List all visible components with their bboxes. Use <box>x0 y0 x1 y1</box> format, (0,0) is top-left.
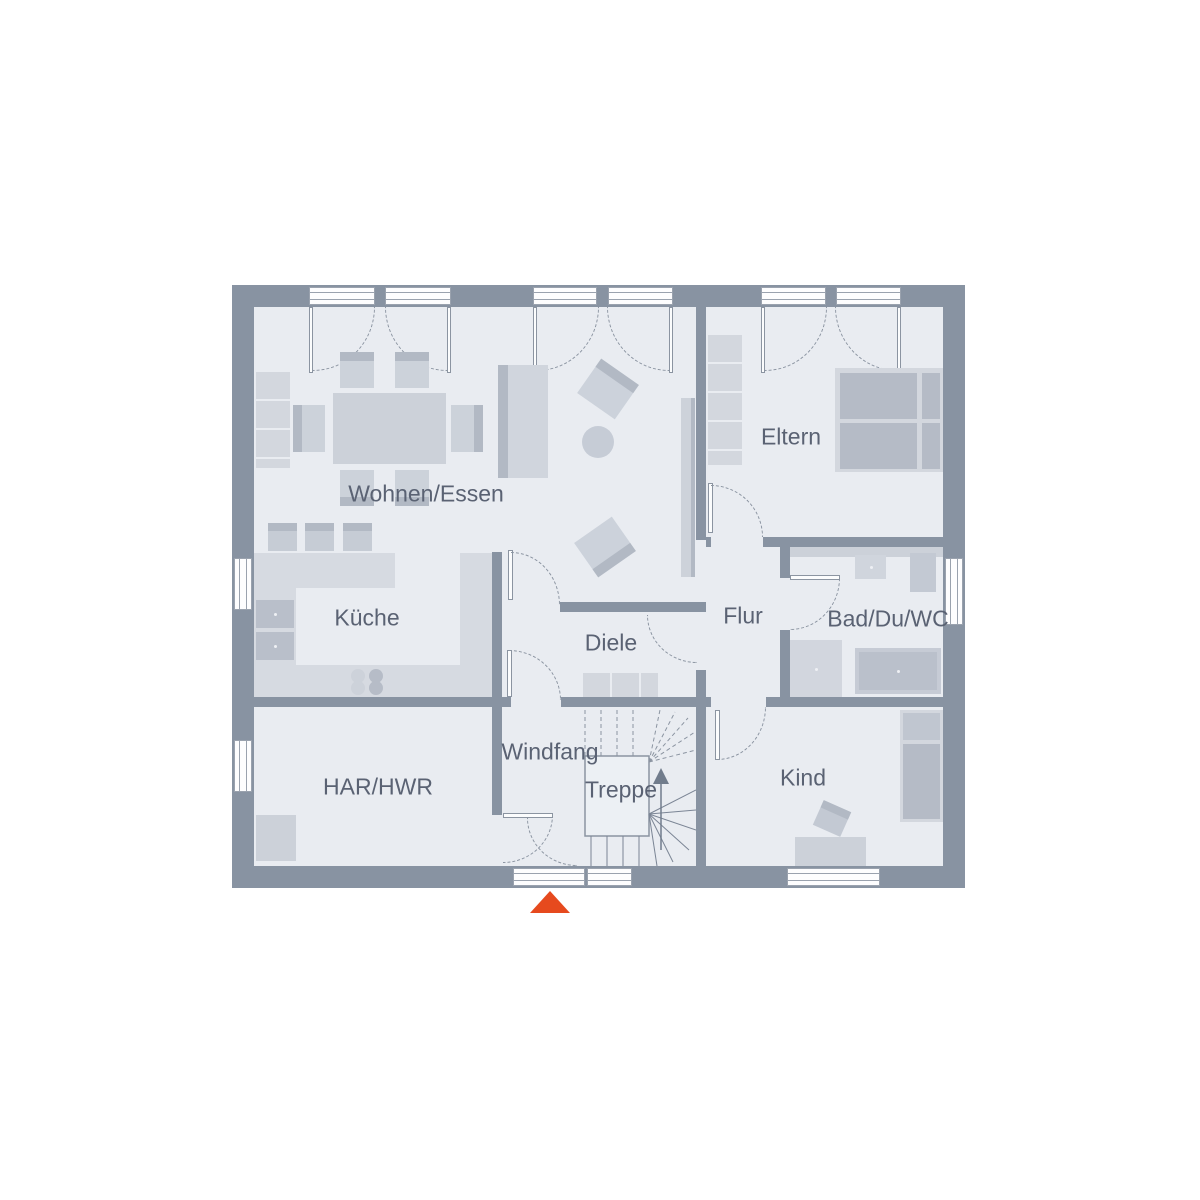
utility-appliance <box>256 815 296 861</box>
room-label-bad: Bad/Du/WC <box>827 606 948 633</box>
wall-wohnen-eltern <box>696 307 706 540</box>
window-leaf <box>897 307 901 373</box>
wall-kueche-diele <box>492 552 502 707</box>
window-leaf <box>669 307 673 373</box>
window-wohnen-left-a <box>309 287 375 305</box>
bar-stool <box>305 523 334 551</box>
window-har <box>234 740 252 792</box>
room-label-treppe: Treppe <box>585 777 657 804</box>
entrance-door <box>513 868 585 886</box>
mattress <box>903 744 940 819</box>
room-label-kueche: Küche <box>334 605 399 632</box>
bathtub <box>855 648 941 694</box>
pillow <box>903 713 940 740</box>
toilet <box>910 553 936 592</box>
hall-cabinet <box>583 673 658 697</box>
wall-eltern-jamb <box>706 537 711 547</box>
wall-flur-bad-upper <box>780 547 790 578</box>
sofa <box>498 365 548 478</box>
room-label-eltern: Eltern <box>761 424 821 451</box>
kitchen-counter-top <box>254 553 395 588</box>
wall-wohnen-diele <box>560 602 706 612</box>
mattress <box>840 423 917 469</box>
window-eltern-a <box>761 287 826 305</box>
room-label-flur: Flur <box>723 603 763 630</box>
oven <box>256 632 294 660</box>
dining-chair <box>293 405 325 452</box>
bar-stool <box>268 523 297 551</box>
oven <box>256 600 294 628</box>
sink <box>855 555 886 579</box>
window-wohnen-right-b <box>608 287 673 305</box>
mattress <box>840 373 917 419</box>
tv-board <box>681 398 695 577</box>
wall-bad-kind <box>766 697 943 707</box>
bar-stool <box>343 523 372 551</box>
wall-diele-treppe <box>561 697 711 707</box>
wall-kueche-har <box>254 697 511 707</box>
dining-chair <box>395 352 429 388</box>
room-label-har: HAR/HWR <box>323 774 433 801</box>
double-bed <box>835 368 943 472</box>
room-label-wohnen: Wohnen/Essen <box>348 481 504 508</box>
desk <box>795 837 866 866</box>
floor-plan: Wohnen/Essen Küche Diele Flur Bad/Du/WC … <box>232 285 965 888</box>
coffee-table <box>582 426 614 458</box>
window-kind <box>787 868 880 886</box>
shower <box>790 640 842 697</box>
wall-flur-bad-lower <box>780 630 790 707</box>
pillow <box>922 423 940 469</box>
dining-chair <box>340 352 374 388</box>
dining-table <box>333 393 446 464</box>
cooktop-burner <box>369 681 383 695</box>
window-wohnen-left-b <box>385 287 451 305</box>
window-wohnen-right-a <box>533 287 597 305</box>
single-bed <box>900 710 943 822</box>
wall-treppe-kind <box>696 707 706 866</box>
cooktop-burner <box>351 681 365 695</box>
room-label-kind: Kind <box>780 765 826 792</box>
entrance-sidelight <box>587 868 632 886</box>
entrance-marker-icon <box>530 891 570 913</box>
sideboard <box>256 372 290 468</box>
kitchen-counter-right <box>460 553 492 697</box>
window-leaf <box>447 307 451 373</box>
window-kueche <box>234 558 252 610</box>
room-label-windfang: Windfang <box>501 739 598 766</box>
floor-plan-canvas: Wohnen/Essen Küche Diele Flur Bad/Du/WC … <box>0 0 1200 1200</box>
pillow <box>922 373 940 419</box>
room-label-diele: Diele <box>585 630 637 657</box>
window-eltern-b <box>836 287 901 305</box>
wardrobe <box>708 335 742 465</box>
dining-chair <box>451 405 483 452</box>
wall-eltern-bad <box>763 537 943 547</box>
